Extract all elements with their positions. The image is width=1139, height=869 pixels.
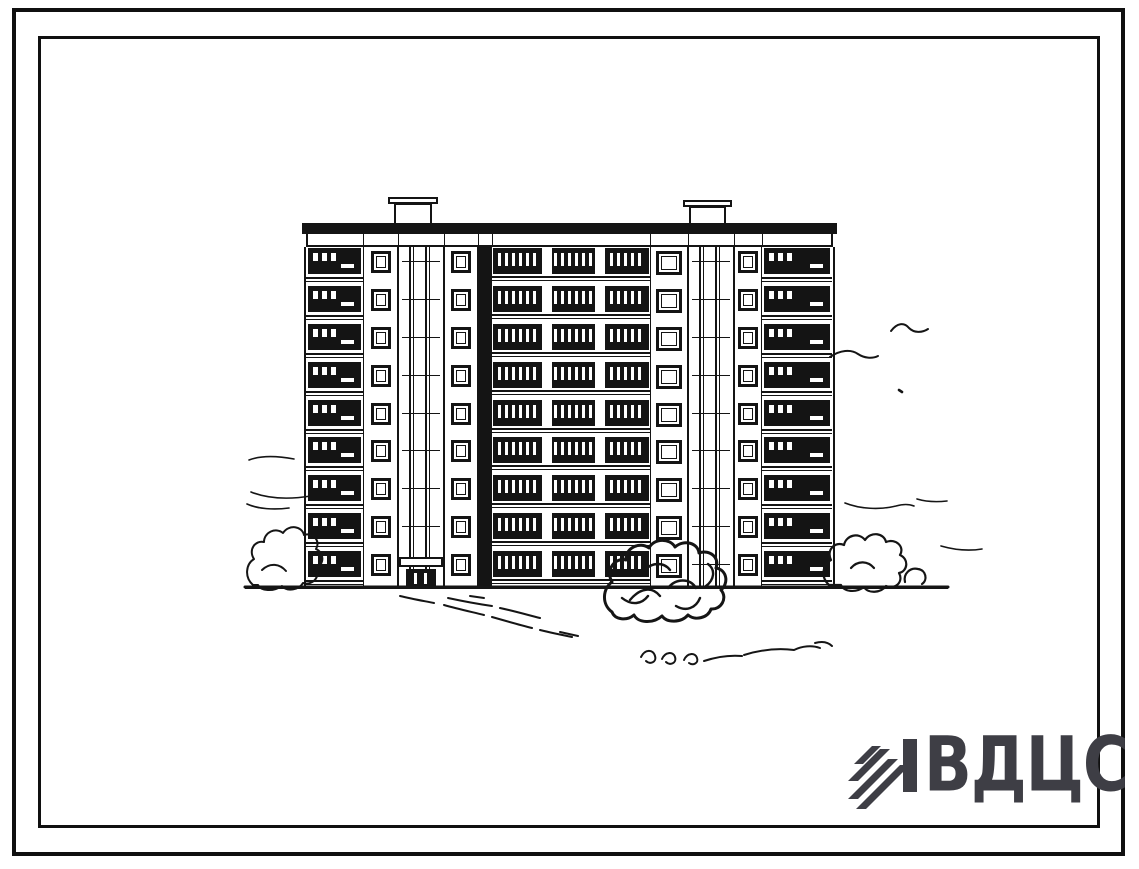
watermark-logo: ВДЦС	[846, 726, 1098, 816]
foreground-squiggles	[641, 642, 832, 664]
left-bush	[247, 527, 322, 590]
left-terrain-strokes	[247, 457, 311, 509]
bird-strokes	[830, 324, 928, 392]
right-terrain-strokes	[845, 499, 982, 550]
right-bush	[823, 534, 925, 592]
diagonal-stripes-mark-icon	[846, 734, 920, 810]
front-bush	[604, 540, 725, 621]
scanned-drawing-page: ВДЦС	[0, 0, 1139, 869]
logo-text: ВДЦС	[924, 722, 1128, 809]
foreground-path-dashes	[400, 596, 578, 637]
